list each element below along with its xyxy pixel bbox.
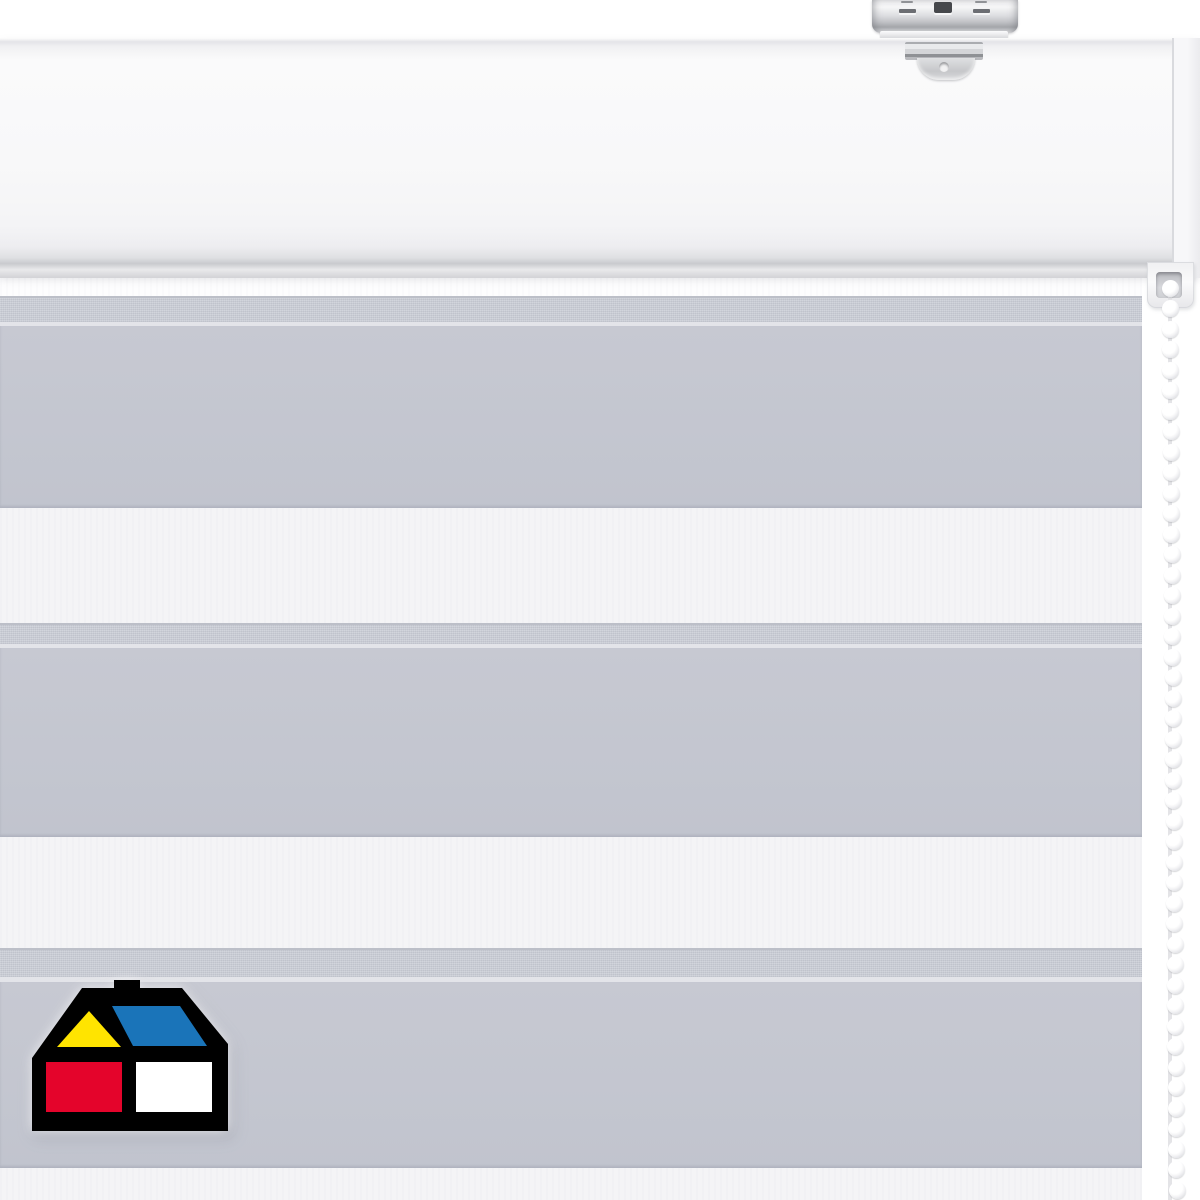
fabric-band-edge: [0, 296, 1142, 322]
bracket-dash-right: [975, 1, 987, 3]
chain-bead: [1164, 649, 1181, 666]
fabric-band-white-gap: [0, 278, 1142, 296]
chain-bead: [1164, 587, 1181, 604]
fabric-band-edge: [0, 623, 1142, 644]
fabric-band-white: [0, 508, 1142, 623]
product-photo-zebra-roller-blind: [0, 0, 1200, 1200]
fabric-band-white: [0, 1168, 1142, 1200]
chain-bead: [1164, 567, 1181, 584]
chain-cord: [1168, 288, 1172, 1200]
bracket-stamp-left: [899, 9, 916, 13]
fabric-band-gray: [0, 326, 1142, 508]
bracket-stamp-right: [973, 9, 990, 13]
fabric-band-white: [0, 837, 1142, 948]
headrail-cassette: [0, 38, 1200, 278]
bracket-screw-hole: [939, 62, 949, 72]
logo-right-square: [136, 1062, 212, 1112]
chain-bead: [1164, 546, 1181, 563]
bracket-dash-left: [901, 1, 913, 3]
bracket-slot-icon: [934, 2, 952, 13]
logo-left-square: [46, 1062, 122, 1112]
chain-bead: [1164, 628, 1181, 645]
fabric-band-gray: [0, 648, 1142, 837]
headrail-endcap: [1172, 38, 1200, 278]
chain-bead: [1164, 608, 1181, 625]
fabric-band-edge: [0, 948, 1142, 977]
bracket-plate: [872, 0, 1018, 33]
homecenter-house-logo-icon: [32, 978, 228, 1131]
